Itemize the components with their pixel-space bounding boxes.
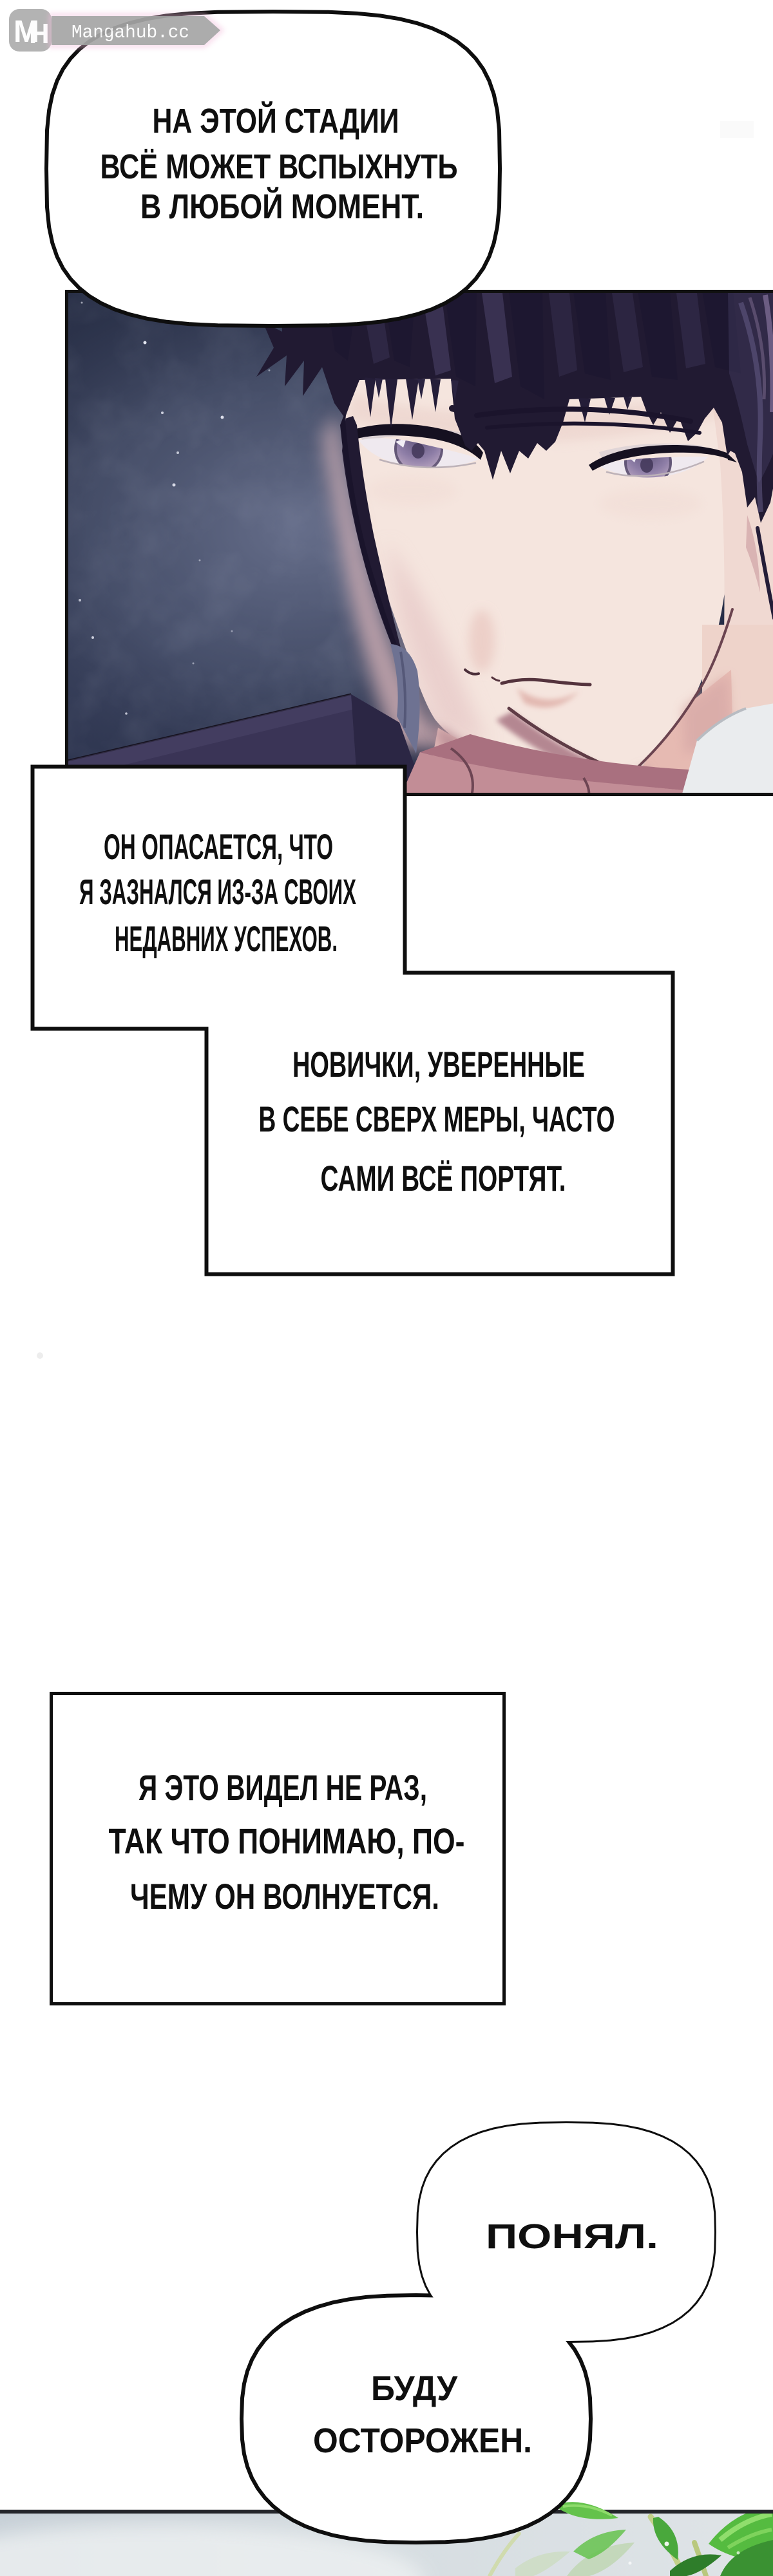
svg-text:ОН ОПАСАЕТСЯ, ЧТО: ОН ОПАСАЕТСЯ, ЧТО: [104, 826, 333, 867]
svg-text:Я ЭТО ВИДЕЛ НЕ РАЗ,: Я ЭТО ВИДЕЛ НЕ РАЗ,: [138, 1767, 427, 1808]
svg-text:ЧЕМУ ОН ВОЛНУЕТСЯ.: ЧЕМУ ОН ВОЛНУЕТСЯ.: [130, 1876, 439, 1917]
svg-text:НА ЭТОЙ СТАДИИ: НА ЭТОЙ СТАДИИ: [153, 101, 399, 140]
svg-text:ВСЁ МОЖЕТ ВСПЫХНУТЬ: ВСЁ МОЖЕТ ВСПЫХНУТЬ: [100, 147, 458, 186]
svg-text:ПОНЯЛ.: ПОНЯЛ.: [486, 2217, 658, 2256]
svg-text:ОСТОРОЖЕН.: ОСТОРОЖЕН.: [313, 2421, 532, 2460]
svg-text:БУДУ: БУДУ: [371, 2369, 458, 2408]
svg-text:В ЛЮБОЙ МОМЕНТ.: В ЛЮБОЙ МОМЕНТ.: [140, 187, 424, 226]
svg-text:Mangahub.cc: Mangahub.cc: [72, 22, 189, 43]
svg-text:САМИ ВСЁ ПОРТЯТ.: САМИ ВСЁ ПОРТЯТ.: [321, 1158, 566, 1198]
svg-text:В СЕБЕ СВЕРХ МЕРЫ, ЧАСТО: В СЕБЕ СВЕРХ МЕРЫ, ЧАСТО: [259, 1099, 615, 1139]
svg-text:H: H: [29, 18, 50, 50]
svg-text:НОВИЧКИ, УВЕРЕННЫЕ: НОВИЧКИ, УВЕРЕННЫЕ: [292, 1044, 585, 1084]
svg-text:ТАК ЧТО ПОНИМАЮ, ПО-: ТАК ЧТО ПОНИМАЮ, ПО-: [109, 1821, 465, 1861]
svg-text:Я ЗАЗНАЛСЯ ИЗ-ЗА СВОИХ: Я ЗАЗНАЛСЯ ИЗ-ЗА СВОИХ: [79, 871, 356, 912]
svg-text:НЕДАВНИХ УСПЕХОВ.: НЕДАВНИХ УСПЕХОВ.: [115, 918, 338, 959]
